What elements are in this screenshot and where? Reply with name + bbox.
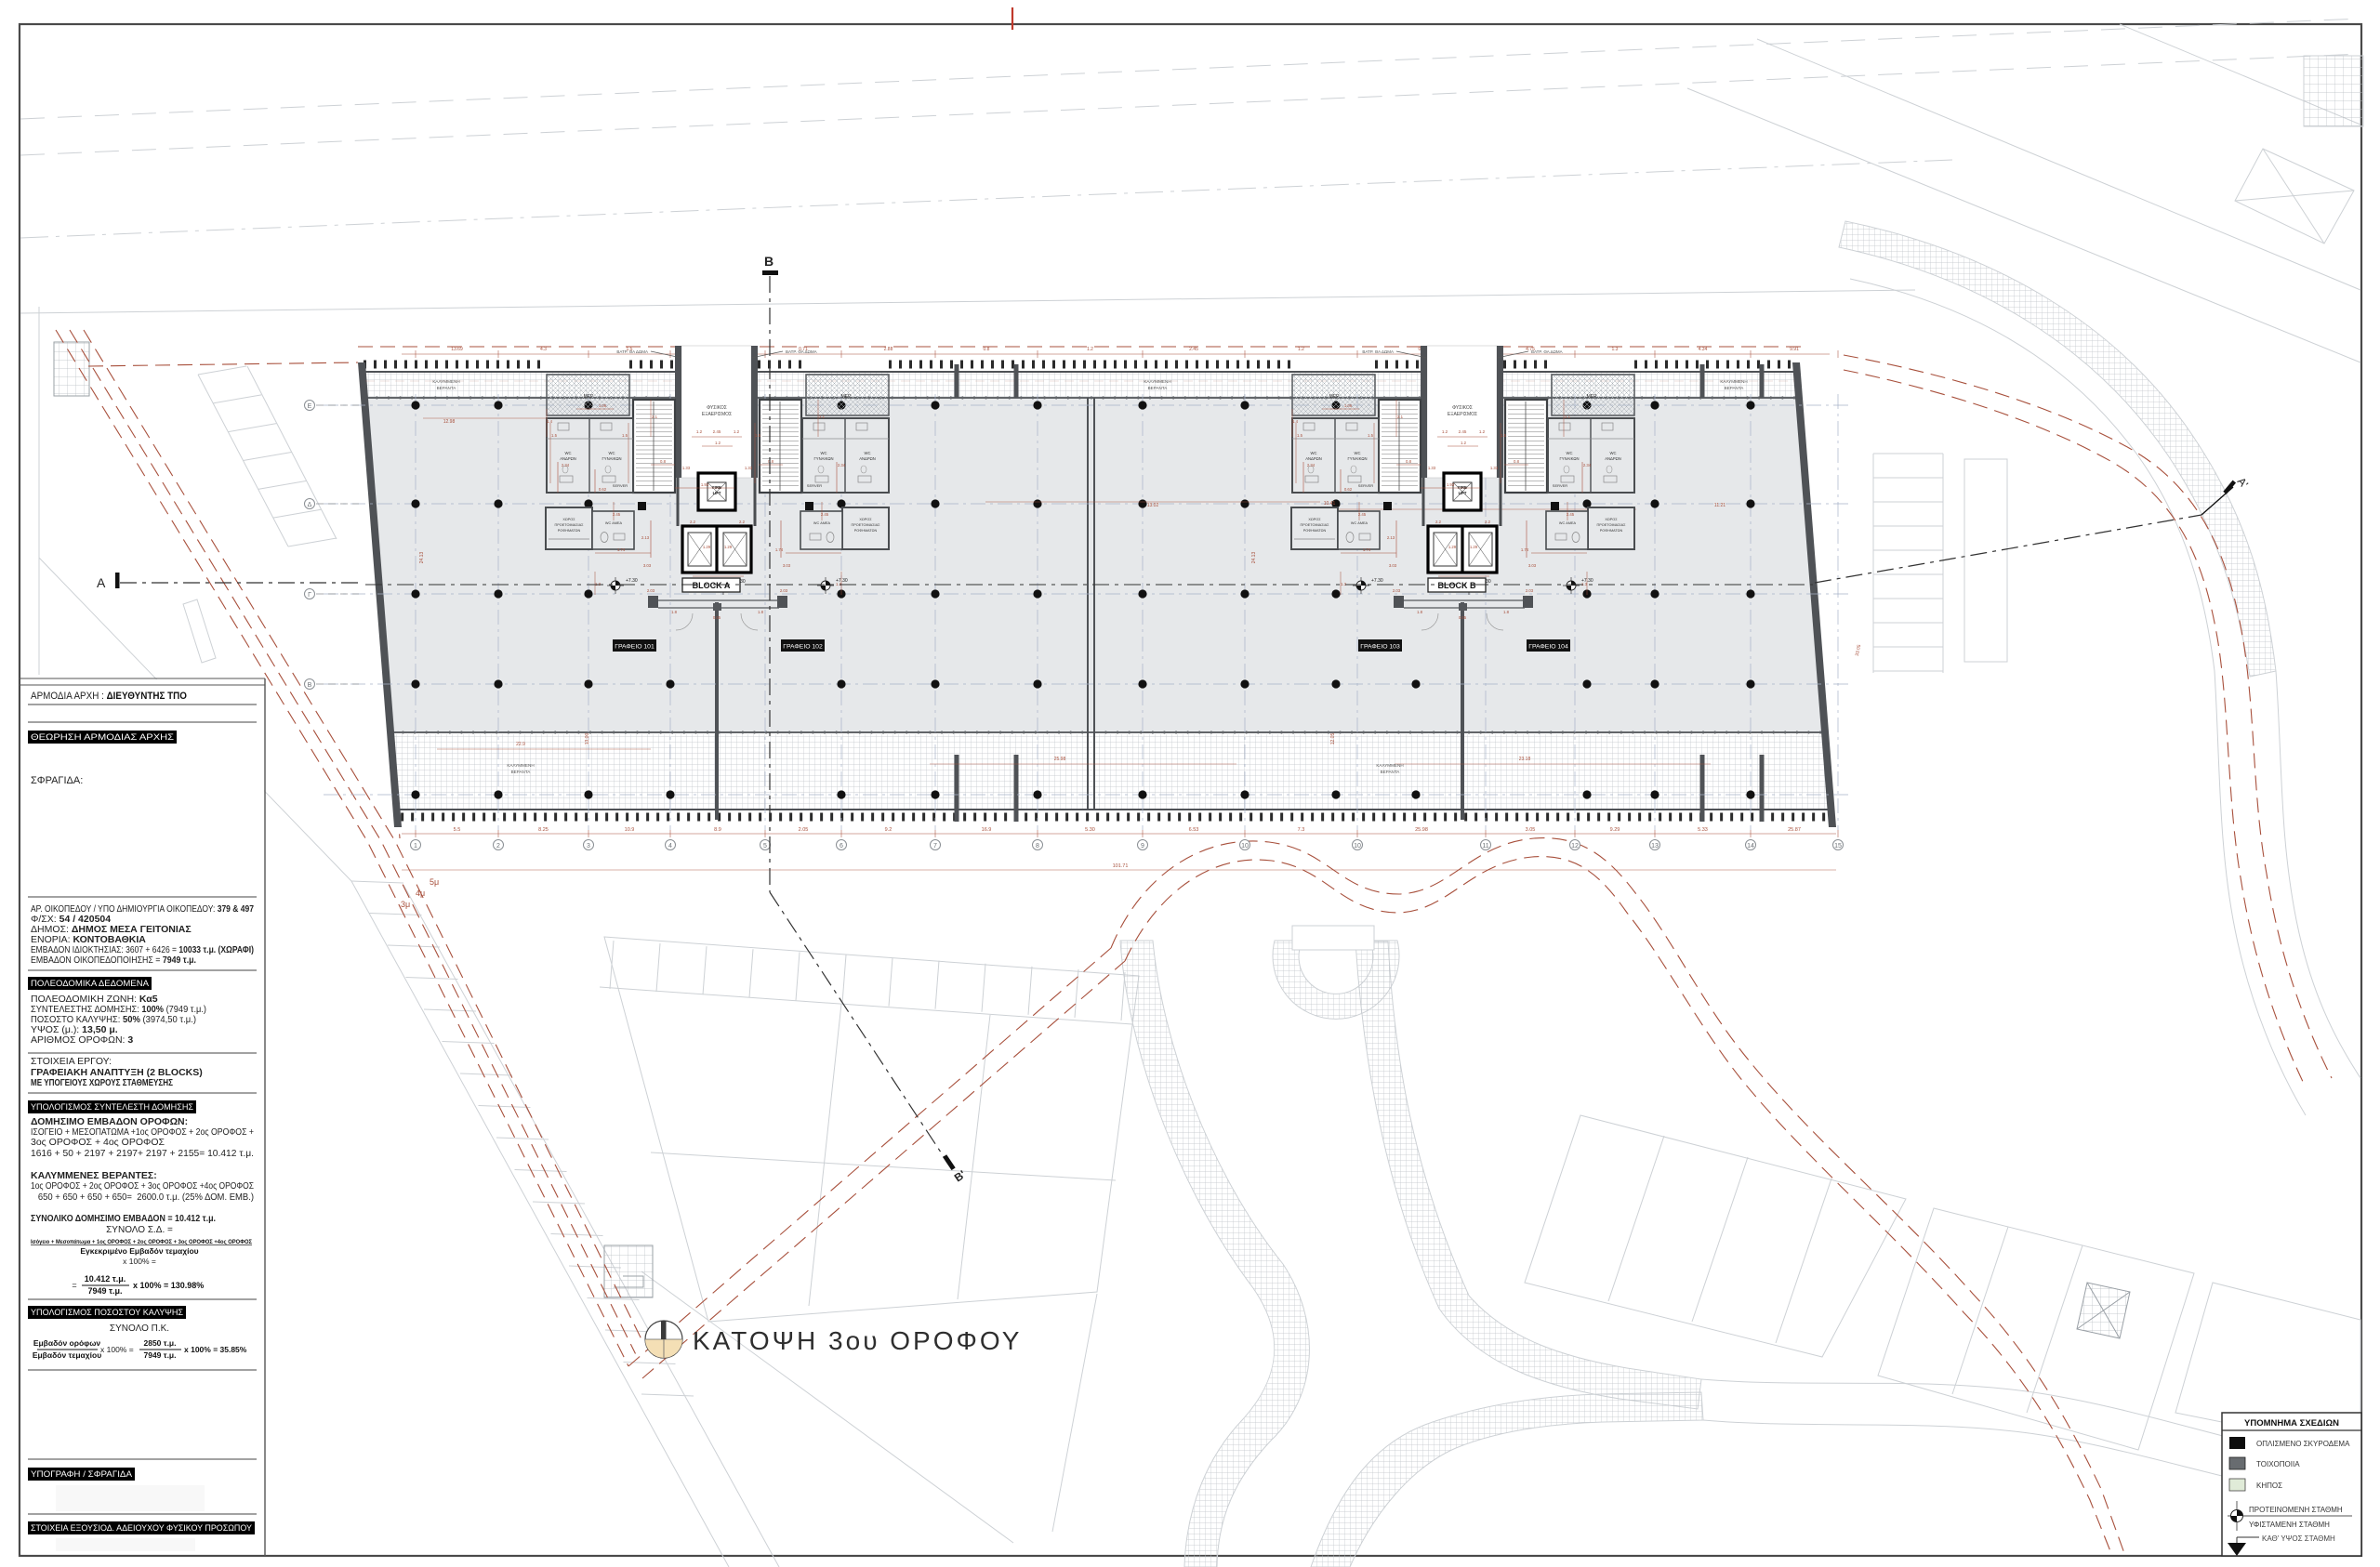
- svg-text:8.9: 8.9: [714, 827, 721, 833]
- svg-text:1.4: 1.4: [547, 419, 553, 424]
- svg-text:3.05: 3.05: [1526, 827, 1536, 833]
- svg-text:1.2: 1.2: [734, 429, 740, 434]
- svg-text:10.41: 10.41: [1324, 501, 1336, 507]
- svg-text:0.8: 0.8: [768, 459, 774, 464]
- svg-text:3: 3: [587, 843, 590, 849]
- svg-text:6.53: 6.53: [1189, 827, 1199, 833]
- svg-text:9.2: 9.2: [885, 827, 892, 833]
- svg-text:x 100% = 130.98%: x 100% = 130.98%: [133, 1281, 204, 1290]
- svg-text:Β: Β: [308, 682, 312, 689]
- svg-text:=: =: [72, 1281, 76, 1290]
- svg-text:1.2: 1.2: [1298, 347, 1304, 352]
- svg-text:Ισόγειο + Μεσοπάτωμα + 1ος ΟΡΟ: Ισόγειο + Μεσοπάτωμα + 1ος ΟΡΟΦΟΣ + 2ος …: [31, 1239, 252, 1245]
- svg-text:Δ: Δ: [308, 502, 312, 508]
- svg-text:13.00: 13.00: [585, 733, 590, 745]
- svg-text:ΒΕΡΑΝΤΑ: ΒΕΡΑΝΤΑ: [437, 386, 457, 390]
- svg-text:ΦΥΣΙΚΟΣ: ΦΥΣΙΚΟΣ: [707, 405, 727, 411]
- svg-text:ΠΡΟΕΤΟΙΜΑΣΙΑΣ: ΠΡΟΕΤΟΙΜΑΣΙΑΣ: [852, 523, 881, 527]
- svg-text:ΤΟΙΧΟΠΟΙΙΑ: ΤΟΙΧΟΠΟΙΙΑ: [2256, 1460, 2300, 1468]
- svg-text:BLOCK B: BLOCK B: [1438, 581, 1476, 590]
- svg-text:ΒΕΡΑΝΤΑ: ΒΕΡΑΝΤΑ: [511, 770, 532, 774]
- svg-text:7949 τ.μ.: 7949 τ.μ.: [144, 1350, 177, 1360]
- svg-text:1: 1: [414, 843, 417, 849]
- svg-text:x 100% = 35.85%: x 100% = 35.85%: [184, 1345, 247, 1354]
- svg-text:ΓΥΝΑΙΚΩΝ: ΓΥΝΑΙΚΩΝ: [602, 456, 621, 461]
- svg-text:ΣΤΟΙΧΕΙΑ ΕΡΓΟΥ:: ΣΤΟΙΧΕΙΑ ΕΡΓΟΥ:: [31, 1056, 112, 1067]
- svg-text:ΚΑΛΥΜΜΕΝΗ: ΚΑΛΥΜΜΕΝΗ: [507, 763, 534, 768]
- svg-text:WC: WC: [865, 451, 871, 455]
- svg-text:23.18: 23.18: [1519, 757, 1531, 762]
- svg-text:MEP: MEP: [584, 394, 595, 400]
- svg-text:1.8: 1.8: [671, 610, 678, 614]
- svg-text:1.06: 1.06: [599, 403, 607, 408]
- svg-text:ΣΥΝΟΛΟ Σ.Δ. =: ΣΥΝΟΛΟ Σ.Δ. =: [106, 1225, 173, 1235]
- svg-text:0.8: 0.8: [660, 459, 667, 464]
- svg-text:2.05: 2.05: [799, 827, 809, 833]
- svg-text:ΧΩΡΟΣ: ΧΩΡΟΣ: [859, 518, 872, 521]
- svg-text:ΚΗΠΟΣ: ΚΗΠΟΣ: [2256, 1481, 2282, 1490]
- svg-text:650 + 650 + 650 + 650= 2600.0: 650 + 650 + 650 + 650= 2600.0 τ.μ. (25% …: [31, 1192, 254, 1203]
- svg-text:4.34: 4.34: [1699, 347, 1708, 352]
- svg-text:ΒΑΤΡ. ΘΑ ΔΩΜΑ: ΒΑΤΡ. ΘΑ ΔΩΜΑ: [786, 349, 817, 354]
- svg-text:22.9: 22.9: [516, 742, 525, 747]
- svg-text:ΣΥΝΟΛΟ Π.Κ.: ΣΥΝΟΛΟ Π.Κ.: [110, 1323, 169, 1334]
- svg-text:25.98: 25.98: [1054, 757, 1066, 762]
- svg-text:2.03: 2.03: [780, 588, 788, 593]
- svg-text:2.45: 2.45: [713, 429, 721, 434]
- svg-text:1.2: 1.2: [696, 429, 703, 434]
- svg-text:ΕΞΑΕΡΙΣΜΟΣ: ΕΞΑΕΡΙΣΜΟΣ: [702, 412, 732, 417]
- svg-text:A: A: [97, 575, 106, 590]
- svg-text:ΧΩΡΟΣ: ΧΩΡΟΣ: [562, 518, 575, 521]
- svg-text:2.1: 2.1: [819, 415, 826, 419]
- svg-text:ΚΑΛΥΜΜΕΝΗ: ΚΑΛΥΜΜΕΝΗ: [1720, 379, 1747, 384]
- svg-text:1.29: 1.29: [724, 545, 733, 549]
- svg-text:10: 10: [1241, 843, 1249, 849]
- svg-text:ΒΕΡΑΝΤΑ: ΒΕΡΑΝΤΑ: [1148, 386, 1169, 390]
- svg-text:0.62: 0.62: [599, 487, 607, 492]
- svg-text:1.33: 1.33: [745, 466, 753, 470]
- svg-text:5.30: 5.30: [1085, 827, 1095, 833]
- svg-text:0.65: 0.65: [713, 615, 721, 620]
- svg-text:1.2: 1.2: [1087, 347, 1093, 352]
- svg-text:ΠΡΟΕΤΟΙΜΑΣΙΑΣ: ΠΡΟΕΤΟΙΜΑΣΙΑΣ: [555, 523, 585, 527]
- svg-text:13.02: 13.02: [1147, 503, 1159, 508]
- svg-text:2.34: 2.34: [562, 463, 570, 467]
- svg-text:2.45: 2.45: [821, 512, 829, 517]
- svg-text:WC: WC: [821, 451, 827, 455]
- svg-text:ΚΑΛΥΜΜΕΝΗ: ΚΑΛΥΜΜΕΝΗ: [1144, 379, 1170, 384]
- svg-text:ΚΑΛΥΜΜΕΝΗ: ΚΑΛΥΜΜΕΝΗ: [1376, 763, 1403, 768]
- svg-text:+7.30: +7.30: [626, 578, 638, 584]
- svg-text:8.25: 8.25: [538, 827, 549, 833]
- svg-text:1.5: 1.5: [755, 433, 761, 438]
- svg-text:8: 8: [1036, 843, 1039, 849]
- svg-text:1.5: 1.5: [551, 433, 558, 438]
- svg-text:ΒΑΤΡ. ΘΑ ΔΩΜΑ: ΒΑΤΡ. ΘΑ ΔΩΜΑ: [616, 349, 648, 354]
- svg-text:6: 6: [840, 843, 843, 849]
- svg-text:ΣΦΡΑΓΙΔΑ:: ΣΦΡΑΓΙΔΑ:: [31, 775, 83, 786]
- svg-text:ΚΑΛΥΜΜΕΝΗ: ΚΑΛΥΜΜΕΝΗ: [432, 379, 459, 384]
- svg-text:ΓΡΑΦΕΙΟ 101: ΓΡΑΦΕΙΟ 101: [615, 644, 654, 651]
- svg-text:4μ: 4μ: [416, 889, 425, 898]
- svg-text:12.98: 12.98: [443, 419, 456, 425]
- svg-text:ΑΝΔΡΩΝ: ΑΝΔΡΩΝ: [859, 456, 876, 461]
- svg-text:WC ΑΜΕΑ: WC ΑΜΕΑ: [813, 521, 831, 525]
- svg-text:5.33: 5.33: [1698, 827, 1708, 833]
- svg-text:ΥΠΟΛΟΓΙΣΜΟΣ ΠΟΣΟΣΤΟΥ ΚΑΛΥΨΗΣ: ΥΠΟΛΟΓΙΣΜΟΣ ΠΟΣΟΣΤΟΥ ΚΑΛΥΨΗΣ: [31, 1308, 183, 1318]
- svg-text:BLOCK A: BLOCK A: [693, 581, 731, 590]
- svg-text:1.3: 1.3: [1612, 347, 1619, 352]
- svg-text:ΓΡΑΦΕΙΟ 104: ΓΡΑΦΕΙΟ 104: [1528, 644, 1568, 651]
- svg-text:ΓΡΑΦΕΙΟ 103: ΓΡΑΦΕΙΟ 103: [1360, 644, 1400, 651]
- svg-text:ΒΕΡΑΝΤΑ: ΒΕΡΑΝΤΑ: [1381, 770, 1401, 774]
- svg-text:ΠΡΟΤΕΙΝΟΜΕΝΗ ΣΤΑΘΜΗ: ΠΡΟΤΕΙΝΟΜΕΝΗ ΣΤΑΘΜΗ: [2249, 1506, 2343, 1514]
- svg-text:3.03: 3.03: [783, 563, 791, 568]
- svg-text:ΚΑΤΟΨΗ 3ου ΟΡΟΦΟΥ: ΚΑΤΟΨΗ 3ου ΟΡΟΦΟΥ: [693, 1326, 1022, 1355]
- svg-text:1ος ΟΡΟΦΟΣ + 2ος ΟΡΟΦΟΣ + 3ος: 1ος ΟΡΟΦΟΣ + 2ος ΟΡΟΦΟΣ + 3ος ΟΡΟΦΟΣ +4ο…: [31, 1180, 254, 1192]
- svg-text:1.29: 1.29: [703, 545, 711, 549]
- svg-text:ΓΥΝΑΙΚΩΝ: ΓΥΝΑΙΚΩΝ: [813, 456, 833, 461]
- svg-text:2.34: 2.34: [838, 463, 846, 467]
- svg-text:ΚΑΘ' ΥΨΟΣ ΣΤΑΘΜΗ: ΚΑΘ' ΥΨΟΣ ΣΤΑΘΜΗ: [2262, 1534, 2335, 1543]
- svg-text:WC: WC: [565, 451, 572, 455]
- svg-text:Εμβαδόν τεμαχίου: Εμβαδόν τεμαχίου: [33, 1350, 101, 1360]
- svg-text:0.8: 0.8: [984, 347, 990, 352]
- svg-text:SERVER: SERVER: [807, 483, 822, 488]
- svg-text:13: 13: [1651, 843, 1659, 849]
- svg-text:13.69: 13.69: [451, 347, 463, 352]
- svg-text:ΥΠΟΓΡΑΦΗ / ΣΦΡΑΓΙΔΑ: ΥΠΟΓΡΑΦΗ / ΣΦΡΑΓΙΔΑ: [31, 1469, 133, 1480]
- svg-text:24.13: 24.13: [419, 552, 425, 564]
- svg-text:Γ: Γ: [308, 592, 311, 599]
- svg-text:1616 + 50 + 2197 + 2197+ 2197: 1616 + 50 + 2197 + 2197+ 2197 + 2155= 10…: [31, 1148, 254, 1159]
- svg-text:25.98: 25.98: [1415, 827, 1428, 833]
- svg-text:2.13: 2.13: [641, 535, 650, 540]
- svg-text:ΣΥΝΟΛΙΚΟ ΔΟΜΗΣΙΜΟ ΕΜΒΑΔΟΝ = 10: ΣΥΝΟΛΙΚΟ ΔΟΜΗΣΙΜΟ ΕΜΒΑΔΟΝ = 10.412 τ.μ.: [31, 1213, 216, 1224]
- svg-text:2.03: 2.03: [647, 588, 655, 593]
- svg-text:MEP: MEP: [841, 394, 853, 400]
- svg-text:ΟΠΛΙΣΜΕΝΟ ΣΚΥΡΟΔΕΜΑ: ΟΠΛΙΣΜΕΝΟ ΣΚΥΡΟΔΕΜΑ: [2256, 1440, 2350, 1448]
- svg-text:x 100% =: x 100% =: [100, 1345, 134, 1354]
- svg-text:Εγκεκριμένο Εμβαδόν τεμαχίου: Εγκεκριμένο Εμβαδόν τεμαχίου: [80, 1246, 198, 1256]
- svg-text:1.33: 1.33: [682, 466, 691, 470]
- svg-text:ΡΟΦΗΜΑΤΩΝ: ΡΟΦΗΜΑΤΩΝ: [854, 529, 878, 533]
- svg-text:2.45: 2.45: [1189, 347, 1198, 352]
- svg-text:11.21: 11.21: [1714, 503, 1725, 508]
- svg-text:Ε: Ε: [308, 403, 312, 410]
- svg-text:ΕΜΒΑΔΟΝ ΟΙΚΟΠΕΔΟΠΟΙΗΣΗΣ = 7949: ΕΜΒΑΔΟΝ ΟΙΚΟΠΕΔΟΠΟΙΗΣΗΣ = 7949 τ.μ.: [31, 955, 196, 966]
- svg-text:ΥΠΟΛΟΓΙΣΜΟΣ ΣΥΝΤΕΛΕΣΤΗ ΔΟΜΗΣΗΣ: ΥΠΟΛΟΓΙΣΜΟΣ ΣΥΝΤΕΛΕΣΤΗ ΔΟΜΗΣΗΣ: [31, 1102, 193, 1113]
- svg-text:2.2: 2.2: [690, 520, 696, 524]
- svg-text:9: 9: [1141, 843, 1144, 849]
- svg-text:101.71: 101.71: [1113, 863, 1129, 869]
- svg-text:ΣΤΟΙΧΕΙΑ ΕΞΟΥΣΙΟΔ. ΑΔΕΙΟΥΧΟΥ Φ: ΣΤΟΙΧΕΙΑ ΕΞΟΥΣΙΟΔ. ΑΔΕΙΟΥΧΟΥ ΦΥΣΙΚΟΥ ΠΡΟ…: [31, 1523, 253, 1534]
- svg-text:x 100% =: x 100% =: [123, 1257, 156, 1266]
- svg-text:7.3: 7.3: [1298, 827, 1305, 833]
- svg-text:ΘΕΩΡΗΣΗ ΑΡΜΟΔΙΑΣ ΑΡΧΗΣ: ΘΕΩΡΗΣΗ ΑΡΜΟΔΙΑΣ ΑΡΧΗΣ: [31, 732, 174, 743]
- svg-text:2.45: 2.45: [613, 512, 621, 517]
- svg-text:3.03: 3.03: [643, 563, 652, 568]
- svg-text:ΒΕΡΑΝΤΑ: ΒΕΡΑΝΤΑ: [1725, 386, 1745, 390]
- svg-text:9.91: 9.91: [1790, 347, 1799, 352]
- svg-text:2.88: 2.88: [884, 347, 893, 352]
- svg-text:2.2: 2.2: [739, 520, 746, 524]
- svg-text:ΡΟΦΗΜΑΤΩΝ: ΡΟΦΗΜΑΤΩΝ: [558, 529, 581, 533]
- svg-text:10: 10: [1354, 843, 1361, 849]
- svg-text:3μ: 3μ: [401, 900, 410, 909]
- svg-text:9.29: 9.29: [1610, 827, 1620, 833]
- svg-text:4: 4: [668, 843, 672, 849]
- svg-text:25.87: 25.87: [1788, 827, 1801, 833]
- svg-text:ΜΕ ΥΠΟΓΕΙΟΥΣ ΧΩΡΟΥΣ ΣΤΑΘΜΕΥΣΗΣ: ΜΕ ΥΠΟΓΕΙΟΥΣ ΧΩΡΟΥΣ ΣΤΑΘΜΕΥΣΗΣ: [31, 1077, 173, 1088]
- svg-text:Εμβαδόν ορόφων: Εμβαδόν ορόφων: [33, 1338, 101, 1348]
- svg-text:ΑΡΜΟΔΙΑ ΑΡΧΗ : ΔΙΕΥΘΥΝΤΗΣ ΤΠΟ: ΑΡΜΟΔΙΑ ΑΡΧΗ : ΔΙΕΥΘΥΝΤΗΣ ΤΠΟ: [31, 691, 187, 702]
- svg-text:7: 7: [933, 843, 937, 849]
- svg-text:5μ: 5μ: [430, 877, 439, 887]
- svg-text:12: 12: [1571, 843, 1579, 849]
- svg-text:ΓΡΑΦΕΙΟ 102: ΓΡΑΦΕΙΟ 102: [783, 644, 823, 651]
- svg-text:16.9: 16.9: [982, 827, 992, 833]
- svg-text:1.93: 1.93: [701, 482, 709, 487]
- svg-text:2.1: 2.1: [652, 415, 658, 419]
- svg-text:11: 11: [1482, 843, 1488, 849]
- svg-text:12.05: 12.05: [1330, 733, 1336, 745]
- svg-text:ΥΦΙΣΤΑΜΕΝΗ ΣΤΑΘΜΗ: ΥΦΙΣΤΑΜΕΝΗ ΣΤΑΘΜΗ: [2249, 1521, 2330, 1529]
- svg-text:ΑΝΔΡΩΝ: ΑΝΔΡΩΝ: [560, 456, 576, 461]
- svg-text:24.13: 24.13: [1251, 552, 1257, 564]
- svg-text:WC ΑΜΕΑ: WC ΑΜΕΑ: [605, 521, 623, 525]
- svg-text:LIFT: LIFT: [713, 491, 721, 495]
- svg-text:10.412 τ.μ.: 10.412 τ.μ.: [85, 1274, 126, 1284]
- svg-text:1.2: 1.2: [715, 441, 721, 445]
- svg-text:1.8: 1.8: [758, 610, 764, 614]
- svg-text:15: 15: [1834, 843, 1842, 849]
- svg-text:7949 τ.μ.: 7949 τ.μ.: [87, 1286, 122, 1296]
- svg-text:3ος ΟΡΟΦΟΣ + 4ος ΟΡΟΦΟΣ: 3ος ΟΡΟΦΟΣ + 4ος ΟΡΟΦΟΣ: [31, 1137, 165, 1148]
- svg-text:4.3: 4.3: [540, 347, 547, 352]
- svg-text:5: 5: [763, 843, 767, 849]
- svg-text:FIRE: FIRE: [712, 485, 721, 490]
- svg-text:5.5: 5.5: [454, 827, 461, 833]
- svg-text:10.9: 10.9: [625, 827, 635, 833]
- svg-text:ΑΡΙΘΜΟΣ ΟΡΟΦΩΝ: 3: ΑΡΙΘΜΟΣ ΟΡΟΦΩΝ: 3: [31, 1034, 133, 1046]
- svg-text:2850 τ.μ.: 2850 τ.μ.: [144, 1338, 177, 1348]
- svg-text:1.5: 1.5: [622, 433, 628, 438]
- svg-text:ΥΠΟΜΝΗΜΑ ΣΧΕΔΙΩΝ: ΥΠΟΜΝΗΜΑ ΣΧΕΔΙΩΝ: [2244, 1418, 2339, 1429]
- svg-text:1.74: 1.74: [617, 547, 626, 552]
- svg-text:1.74: 1.74: [775, 547, 784, 552]
- svg-text:2: 2: [496, 843, 500, 849]
- svg-text:SERVER: SERVER: [613, 483, 628, 488]
- svg-text:14: 14: [1747, 843, 1754, 849]
- svg-text:B: B: [764, 254, 773, 269]
- svg-text:WC: WC: [609, 451, 615, 455]
- svg-text:ΠΟΛΕΟΔΟΜΙΚΑ ΔΕΔΟΜΕΝΑ: ΠΟΛΕΟΔΟΜΙΚΑ ΔΕΔΟΜΕΝΑ: [31, 979, 150, 989]
